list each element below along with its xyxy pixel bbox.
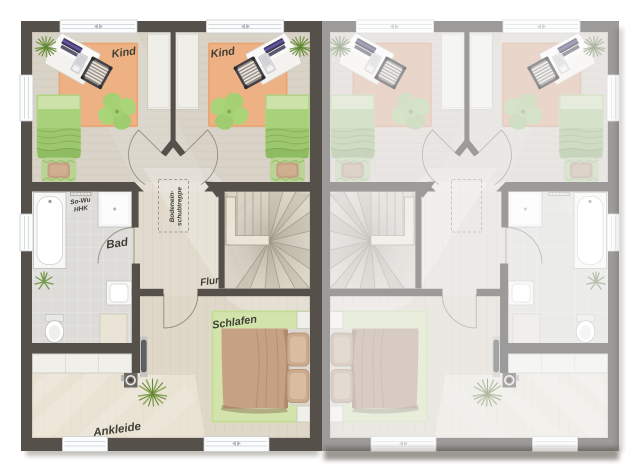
svg-text:Bodenein-: Bodenein-	[169, 191, 176, 223]
svg-text:schubtreppe: schubtreppe	[176, 187, 183, 226]
